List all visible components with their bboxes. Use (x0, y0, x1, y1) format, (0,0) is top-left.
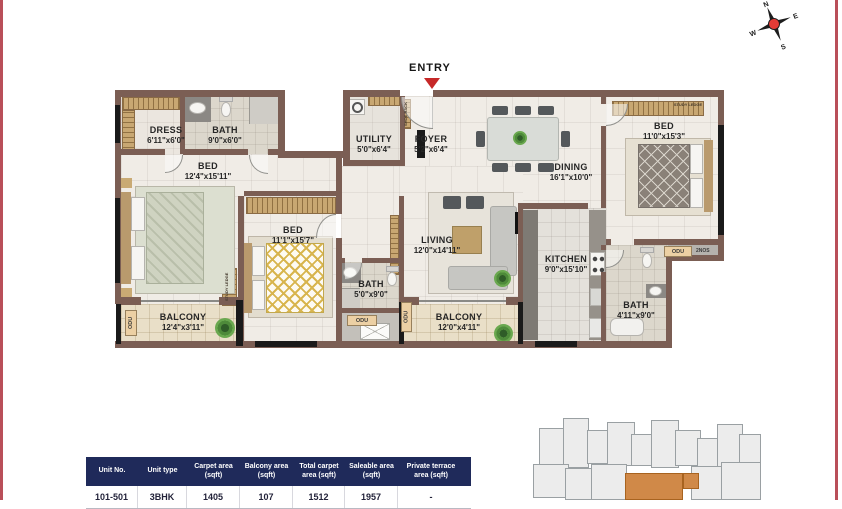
sink-icon (649, 286, 662, 296)
pillow-icon (690, 144, 703, 174)
nightstand (121, 178, 132, 188)
study-ledge-label: STUDY LEDGE (672, 103, 704, 107)
chair-icon (515, 163, 531, 172)
washing-machine-icon (348, 99, 365, 115)
wall (634, 239, 724, 245)
table-cell-private-terrace-area: - (398, 486, 464, 508)
chair-icon (476, 131, 485, 147)
pillow-icon (131, 197, 145, 231)
pillow-icon (131, 246, 145, 280)
window-strip (236, 300, 243, 346)
compass-s-label: S (780, 43, 787, 51)
bed-headboard (121, 192, 131, 284)
room-label-bath2: BATH 5'0"x9'0" (341, 279, 401, 299)
key-plan-block (591, 464, 627, 500)
window-strip (535, 341, 577, 347)
table-header-cell: Unit type (138, 457, 187, 486)
compass-n-label: N (763, 1, 770, 9)
room-label-dress: DRESS 6'11"x6'0" (140, 125, 192, 145)
table-header-cell: Private terrace area (sqft) (398, 457, 464, 486)
armchair-icon (466, 196, 484, 209)
compass-e-label: E (792, 13, 799, 21)
room-label-living: LIVING 12'0"x14'11" (387, 235, 487, 255)
shower-area (249, 97, 279, 124)
table-cell-unit-no: 101-501 (86, 486, 138, 508)
study-ledge-label: STUDY LEDGE (225, 272, 229, 302)
odu-label: ODU (347, 315, 377, 326)
room-label-balcony1: BALCONY 12'4"x3'11" (133, 312, 233, 332)
wall (343, 160, 403, 166)
window-strip (518, 302, 523, 344)
wall (115, 149, 165, 155)
window-strip (718, 125, 724, 235)
wall (115, 90, 285, 97)
room-label-dining: DINING 16'1"x10'0" (531, 162, 611, 182)
shoe-rack-label: SHOE RACK (404, 101, 408, 127)
bed-headboard (244, 243, 252, 313)
armchair-icon (443, 196, 461, 209)
chair-icon (538, 106, 554, 115)
table-header-cell: Unit No. (86, 457, 138, 486)
key-plan (533, 412, 765, 500)
wall (278, 90, 285, 158)
window-strip (116, 304, 121, 344)
wall (362, 258, 402, 263)
wall (601, 96, 606, 104)
chair-icon (561, 131, 570, 147)
wall (343, 90, 400, 97)
table-header-cell: Total carpet area (sqft) (293, 457, 345, 486)
unit-table-header: Unit No. Unit type Carpet area (sqft) Ba… (86, 457, 471, 486)
wall (183, 149, 248, 155)
wardrobe (246, 197, 336, 214)
plant-icon (494, 270, 511, 287)
table-row: 101-501 3BHK 1405 107 1512 1957 - (86, 486, 471, 509)
wall (268, 149, 285, 155)
room-label-bath3: BATH 4'11"x9'0" (604, 300, 668, 320)
unit-table: Unit No. Unit type Carpet area (sqft) Ba… (86, 457, 471, 509)
kitchen-counter (523, 210, 538, 340)
key-plan-highlight (683, 473, 699, 489)
wall (115, 341, 672, 348)
sliding-door (141, 300, 219, 302)
table-cell-total-carpet-area: 1512 (293, 486, 345, 508)
room-label-bed2: BED 11'1"x15'7" (243, 225, 343, 245)
wall (121, 297, 141, 305)
pillow-icon (252, 246, 265, 276)
table-cell-saleable-area: 1957 (345, 486, 398, 508)
window-strip (255, 341, 317, 347)
table-header-cell: Saleable area (sqft) (345, 457, 398, 486)
wall (343, 90, 350, 166)
plant-icon (513, 131, 527, 145)
entry-label: ENTRY (409, 62, 451, 74)
room-label-balcony2: BALCONY 12'0"x4'11" (409, 312, 509, 332)
wall (518, 203, 588, 209)
sliding-door (419, 300, 506, 302)
table-header-cell: Carpet area (sqft) (187, 457, 240, 486)
bed-icon (266, 243, 324, 313)
chair-icon (515, 106, 531, 115)
bed-icon (638, 144, 690, 208)
odu-label: ODU (664, 246, 692, 257)
room-label-utility: UTILITY 5'0"x6'4" (344, 134, 404, 154)
compass-icon: N E S W (740, 0, 810, 54)
table-header-cell: Balcony area (sqft) (240, 457, 293, 486)
odu-count-label: 2NOS (696, 248, 710, 254)
key-plan-block (533, 464, 569, 498)
wall (433, 90, 724, 97)
window-strip (115, 198, 120, 283)
toilet-icon (642, 253, 652, 268)
room-label-foyer: FOYER 5'2"x6'4" (401, 134, 461, 154)
bed-icon (146, 192, 204, 284)
key-plan-block (563, 418, 589, 468)
key-plan-block (721, 462, 761, 500)
table-cell-carpet-area: 1405 (187, 486, 240, 508)
room-label-bath1: BATH 9'0"x6'0" (196, 125, 254, 145)
wall (244, 191, 336, 196)
room-label-bed3: BED 11'0"x15'3" (614, 121, 714, 141)
chair-icon (492, 163, 508, 172)
key-plan-highlight (625, 473, 683, 500)
table-cell-unit-type: 3BHK (138, 486, 187, 508)
wall (341, 308, 402, 313)
wall (606, 239, 611, 245)
sink-icon (189, 102, 206, 114)
bathtub-icon (610, 318, 644, 336)
toilet-icon (221, 102, 231, 117)
window-strip (115, 105, 120, 143)
wall (336, 151, 342, 214)
chair-icon (492, 106, 508, 115)
entry-arrow-icon (424, 78, 440, 89)
table-cell-balcony-area: 107 (240, 486, 293, 508)
wardrobe (122, 110, 135, 154)
pillow-icon (690, 178, 703, 208)
room-label-bed1: BED 12'4"x15'11" (158, 161, 258, 181)
room-label-kitchen: KITCHEN 9'0"x15'10" (516, 254, 616, 274)
utility-shelf (368, 96, 400, 106)
page: { "page": {"side_border_color": "#b94f59… (0, 0, 842, 500)
wardrobe (122, 97, 180, 110)
compass-w-label: W (749, 29, 758, 38)
pillow-icon (252, 280, 265, 310)
bed-headboard (704, 140, 713, 212)
